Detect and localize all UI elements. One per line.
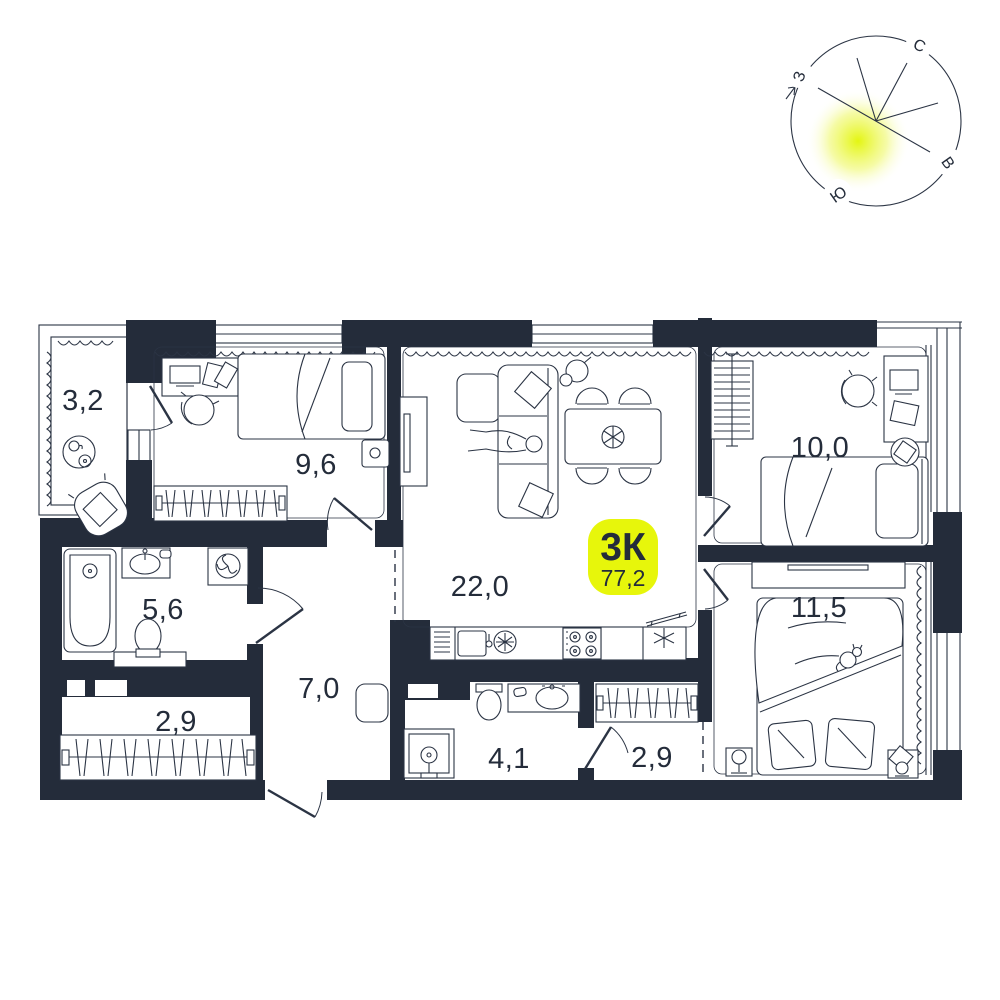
wardrobe-right-rail <box>596 684 698 722</box>
nightstand-icon <box>888 746 918 778</box>
door-icon <box>704 497 730 536</box>
window-icon <box>926 562 931 775</box>
bathtub-icon <box>64 549 116 652</box>
bed-icon <box>755 598 903 775</box>
wardrobe-rail-icon <box>154 486 287 521</box>
floor-plan-page: С З Ю В <box>0 0 1000 1000</box>
radiator-icon <box>711 354 753 446</box>
bedroom-small-furniture <box>154 354 389 521</box>
nightstand-icon <box>726 748 752 776</box>
door-icon <box>585 727 628 769</box>
badge-area-label: 77,2 <box>601 565 646 591</box>
sink-icon <box>122 548 171 578</box>
floor-lamp-icon <box>560 357 591 386</box>
compass-arrow-icon <box>786 87 795 99</box>
room-label-bathroom: 5,6 <box>142 594 184 626</box>
plant-icon <box>602 426 624 448</box>
door-icon <box>327 498 372 530</box>
entrance-door-icon <box>268 790 322 817</box>
toilet-icon <box>114 619 186 667</box>
apartment-type-badge: 3К 77,2 <box>588 519 658 595</box>
window-icon <box>532 325 653 343</box>
chair-icon <box>576 388 608 404</box>
plate-icon <box>494 631 516 653</box>
hallway-furniture <box>356 684 388 722</box>
sun-glow <box>806 89 910 193</box>
door-icon <box>256 588 303 643</box>
room-label-balcony: 3,2 <box>62 385 104 417</box>
room-label-bathroom-guest: 4,1 <box>488 743 530 775</box>
compass: С З Ю В <box>785 30 963 207</box>
room-label-wardrobe-left: 2,9 <box>155 706 197 738</box>
dining-table-icon <box>565 409 661 464</box>
coffee-table-icon <box>63 436 95 468</box>
shower-icon <box>404 729 454 778</box>
room-label-hallway: 7,0 <box>298 673 340 705</box>
room-label-living: 22,0 <box>451 571 509 603</box>
room-label-bedroom-master: 11,5 <box>791 592 847 624</box>
room-labels: 3,2 9,6 22,0 10,0 11,5 5,6 7,0 2,9 4,1 2… <box>62 385 849 775</box>
living-room-furniture <box>400 357 661 518</box>
bed-icon <box>238 354 385 439</box>
sink-icon <box>508 684 580 712</box>
shelf-icon <box>646 612 687 626</box>
office-chair-icon <box>181 392 219 425</box>
floor-plan-drawing: С З Ю В <box>0 0 1000 1000</box>
office-chair-icon <box>841 370 877 407</box>
pouf-icon <box>891 438 919 466</box>
nightstand-icon <box>362 440 389 467</box>
desk-icon <box>162 358 238 396</box>
kitchen-counter <box>430 612 687 660</box>
chair-icon <box>619 468 651 484</box>
bed-icon <box>761 457 928 546</box>
stove-icon <box>563 628 601 659</box>
door-icon <box>704 569 728 609</box>
badge-type-label: 3К <box>600 526 646 569</box>
tv-stand-icon <box>400 397 427 486</box>
chair-icon <box>576 468 608 484</box>
toilet-icon <box>476 684 502 720</box>
window-icon <box>212 325 342 343</box>
room-label-wardrobe-right: 2,9 <box>631 742 673 774</box>
chair-icon <box>619 388 651 404</box>
room-label-bedroom-mid: 10,0 <box>791 432 849 464</box>
window-icon <box>128 430 150 464</box>
tv-stand-icon <box>752 562 905 588</box>
room-label-bedroom-small: 9,6 <box>295 449 337 481</box>
wardrobe-left-rail <box>60 735 256 780</box>
washing-machine-icon <box>208 548 248 585</box>
desk-icon <box>884 356 928 442</box>
cabinet-icon <box>356 684 388 722</box>
